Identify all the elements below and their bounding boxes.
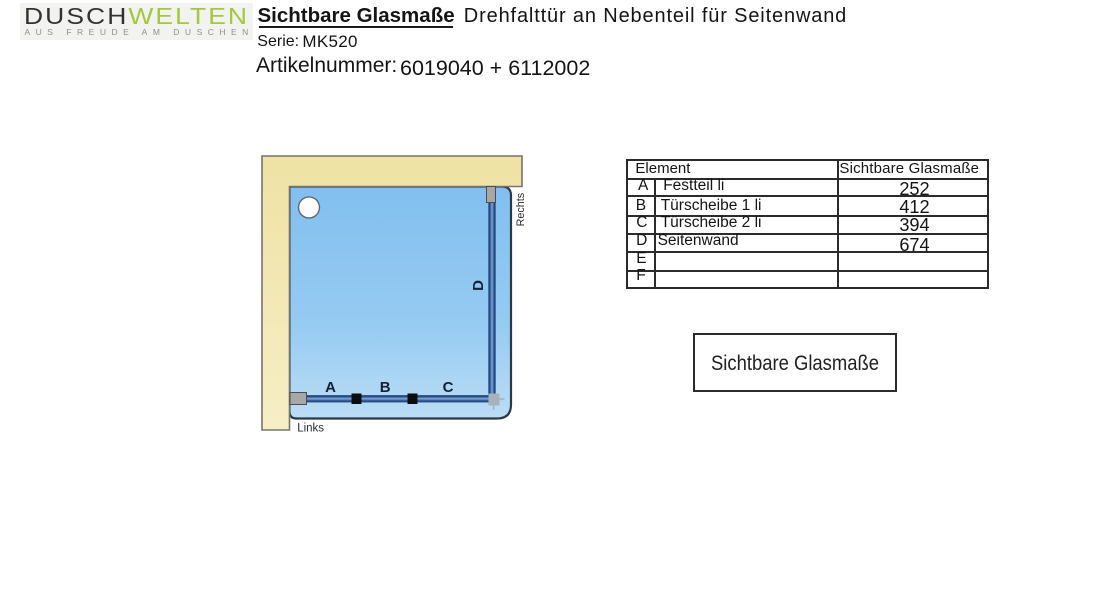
svg-text:Links: Links [297,423,324,435]
svg-text:B: B [380,379,391,396]
svg-text:C: C [443,379,454,396]
svg-text:Rechts: Rechts [515,192,527,226]
svg-text:A: A [325,379,336,396]
svg-text:D: D [470,280,487,291]
